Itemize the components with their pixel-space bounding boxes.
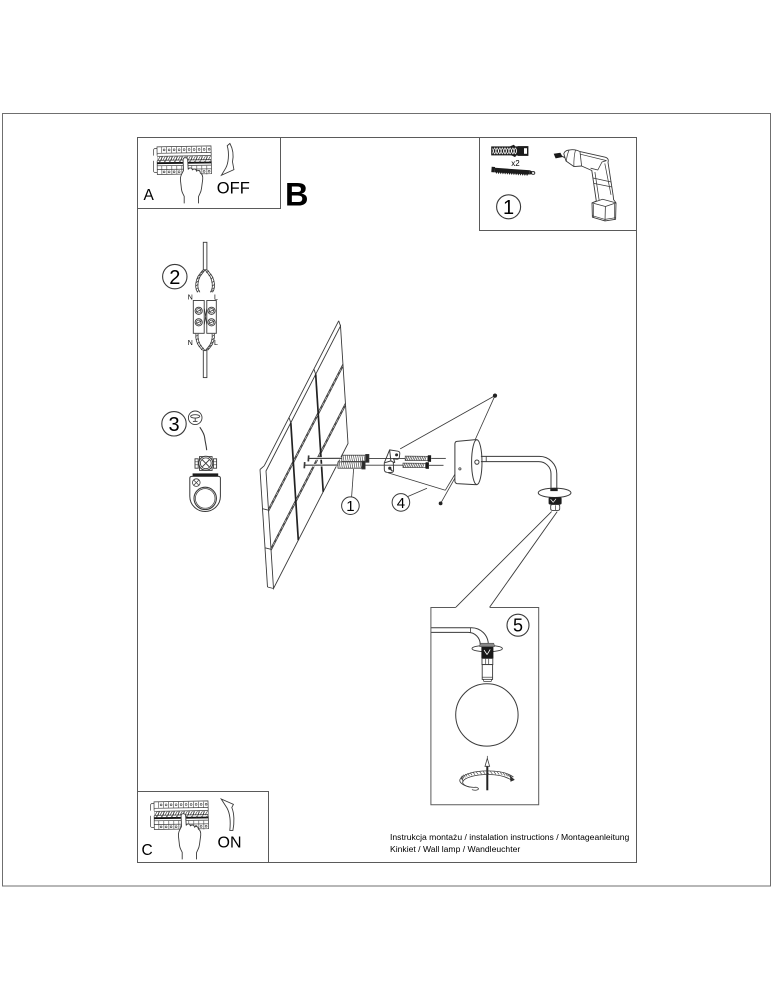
- svg-text:1: 1: [503, 197, 514, 219]
- svg-text:3: 3: [168, 414, 179, 436]
- svg-text:A: A: [144, 187, 155, 204]
- svg-text:N: N: [188, 340, 193, 347]
- svg-text:2: 2: [169, 267, 180, 289]
- svg-text:Instrukcja montażu / instalati: Instrukcja montażu / instalation instruc…: [390, 832, 630, 842]
- svg-text:L: L: [214, 340, 218, 347]
- svg-text:ON: ON: [218, 834, 242, 851]
- svg-text:x2: x2: [511, 159, 520, 168]
- svg-text:B: B: [285, 177, 308, 213]
- svg-text:Kinkiet / Wall lamp / Wandleuc: Kinkiet / Wall lamp / Wandleuchter: [390, 844, 520, 854]
- svg-text:5: 5: [513, 616, 523, 636]
- svg-text:N: N: [188, 295, 193, 302]
- svg-text:4: 4: [397, 495, 405, 512]
- svg-text:1: 1: [346, 498, 354, 515]
- svg-text:OFF: OFF: [217, 180, 250, 198]
- svg-text:C: C: [142, 842, 153, 859]
